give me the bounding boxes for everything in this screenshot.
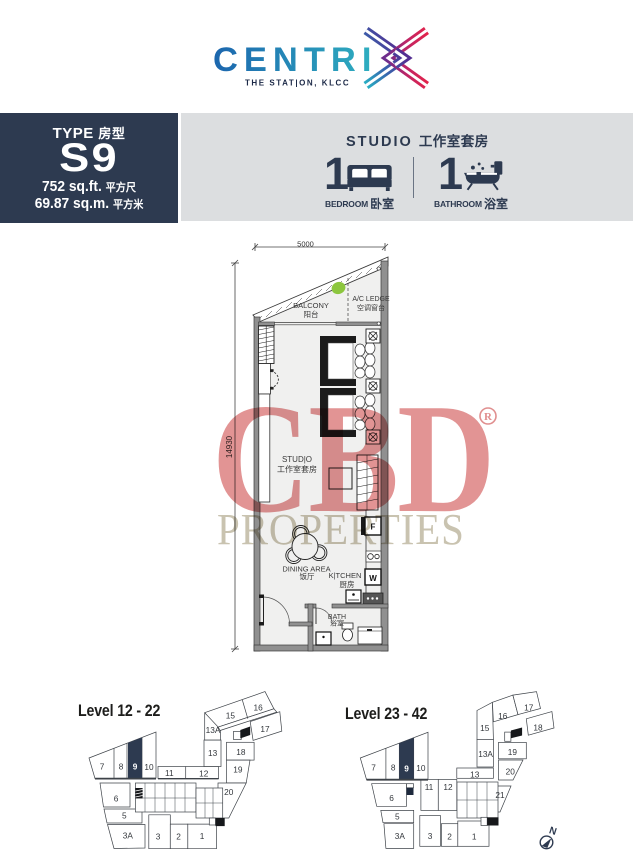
svg-text:3: 3 (156, 832, 161, 842)
svg-text:6: 6 (114, 793, 119, 803)
svg-text:9: 9 (404, 763, 409, 773)
svg-text:19: 19 (233, 765, 243, 775)
svg-text:THE STAT|ON, KLCC: THE STAT|ON, KLCC (245, 79, 350, 88)
svg-text:13A: 13A (478, 749, 493, 759)
svg-text:1: 1 (200, 831, 205, 841)
svg-text:12: 12 (443, 782, 453, 792)
svg-text:8: 8 (391, 763, 396, 773)
svg-text:K|TCHEN: K|TCHEN (329, 571, 362, 580)
svg-text:21: 21 (495, 790, 505, 800)
svg-text:8: 8 (119, 762, 124, 772)
svg-text:13: 13 (470, 769, 480, 779)
svg-text:18: 18 (533, 723, 543, 733)
svg-text:阳台: 阳台 (304, 309, 319, 319)
svg-text:3A: 3A (123, 831, 134, 841)
svg-text:CENTRI: CENTRI (213, 41, 377, 79)
svg-text:A/C LEDGE: A/C LEDGE (352, 296, 390, 303)
svg-text:N: N (548, 825, 558, 838)
svg-text:15: 15 (226, 711, 236, 721)
svg-text:空调窗台: 空调窗台 (357, 303, 385, 312)
svg-text:浴室: 浴室 (330, 619, 344, 628)
svg-text:10: 10 (416, 763, 426, 773)
svg-text:5: 5 (122, 811, 127, 821)
svg-text:9: 9 (133, 762, 138, 772)
svg-text:17: 17 (260, 724, 270, 734)
svg-text:19: 19 (508, 747, 518, 757)
svg-text:13: 13 (208, 748, 218, 758)
svg-text:20: 20 (224, 787, 234, 797)
svg-text:10: 10 (144, 762, 154, 772)
svg-text:5000: 5000 (297, 240, 314, 249)
svg-text:15: 15 (480, 723, 490, 733)
svg-text:16: 16 (498, 711, 508, 721)
svg-text:厨房: 厨房 (340, 579, 355, 589)
svg-text:12: 12 (199, 768, 209, 778)
svg-text:7: 7 (100, 762, 105, 772)
svg-text:BALCONY: BALCONY (293, 301, 329, 310)
svg-text:W: W (369, 574, 377, 583)
svg-text:16: 16 (253, 703, 263, 713)
svg-text:11: 11 (425, 782, 434, 792)
svg-text:11: 11 (165, 768, 174, 778)
svg-text:5: 5 (395, 812, 400, 822)
svg-text:1: 1 (472, 831, 477, 841)
svg-text:2: 2 (447, 832, 452, 842)
svg-text:18: 18 (236, 747, 246, 757)
svg-text:饭厅: 饭厅 (300, 571, 315, 581)
svg-text:20: 20 (506, 767, 516, 777)
svg-text:17: 17 (524, 702, 534, 712)
svg-text:R: R (484, 411, 493, 423)
svg-text:3: 3 (428, 831, 433, 841)
svg-text:2: 2 (176, 832, 181, 842)
svg-text:7: 7 (371, 763, 376, 773)
svg-text:13A: 13A (206, 725, 221, 735)
svg-text:6: 6 (389, 793, 394, 803)
svg-text:3A: 3A (395, 831, 406, 841)
